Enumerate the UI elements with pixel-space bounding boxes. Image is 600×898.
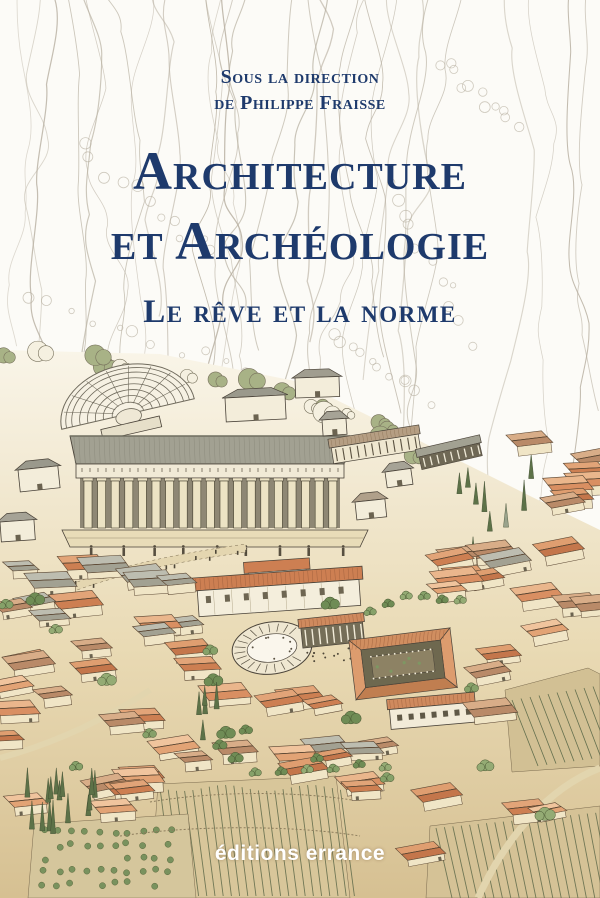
publisher-name: éditions errance	[0, 842, 600, 866]
book-title-line-1: Architecture	[0, 136, 600, 206]
book-subtitle: Le rêve et la norme	[0, 293, 600, 331]
cover-illustration	[0, 0, 600, 898]
edited-by-line-1: Sous la direction	[0, 64, 600, 90]
book-title: Architecture et Archéologie	[0, 136, 600, 276]
book-cover: Sous la direction de Philippe Fraisse Ar…	[0, 0, 600, 898]
book-title-line-2: et Archéologie	[0, 206, 600, 276]
edited-by-line-2: de Philippe Fraisse	[0, 90, 600, 116]
edited-by-line: Sous la direction de Philippe Fraisse	[0, 64, 600, 116]
